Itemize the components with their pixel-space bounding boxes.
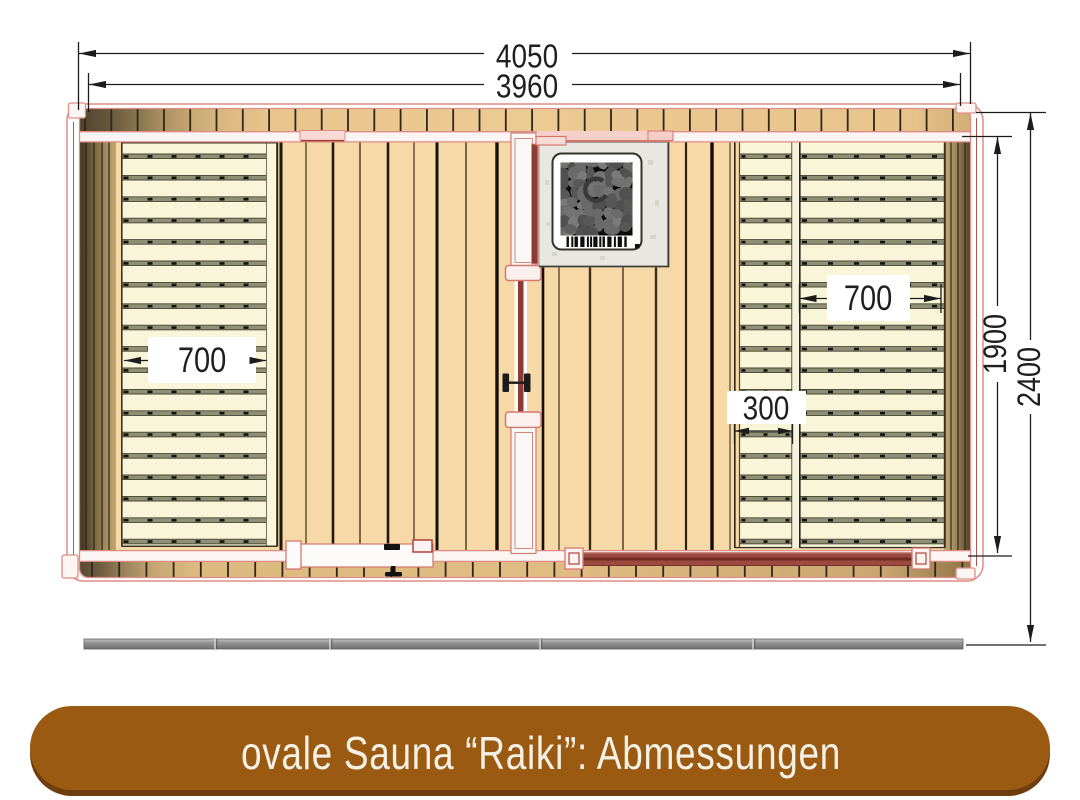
svg-text:2400: 2400 <box>1012 347 1048 407</box>
svg-text:700: 700 <box>844 278 892 317</box>
svg-text:1900: 1900 <box>978 314 1014 374</box>
svg-text:ovale Sauna “Raiki”: Abmessung: ovale Sauna “Raiki”: Abmessungen <box>241 727 841 779</box>
svg-text:300: 300 <box>743 389 790 427</box>
svg-text:700: 700 <box>178 340 226 379</box>
svg-text:3960: 3960 <box>496 67 558 105</box>
